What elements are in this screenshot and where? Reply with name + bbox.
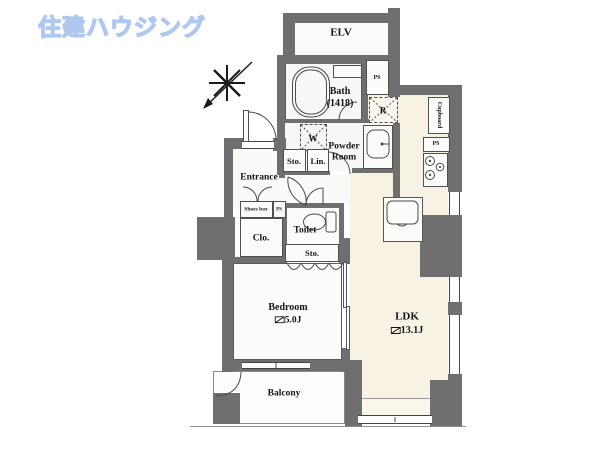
ldk-label: LDK <box>395 312 419 323</box>
ldk-size-label: 13.1J <box>391 326 424 336</box>
wall <box>388 85 462 95</box>
stove-box <box>423 153 448 187</box>
washbasin-vanity <box>363 125 393 169</box>
wall-pillar <box>213 393 240 424</box>
compass-icon <box>203 62 252 109</box>
window <box>358 415 432 424</box>
ground-line <box>190 426 466 427</box>
ps-label: PS <box>432 141 439 147</box>
wall <box>283 13 400 23</box>
window <box>449 277 460 302</box>
window <box>242 362 310 369</box>
wall <box>448 302 462 315</box>
window <box>449 192 460 215</box>
ps-label: PS <box>373 75 380 81</box>
powder-room-label-2: Room <box>332 153 356 163</box>
window <box>449 315 460 374</box>
fridge-label: R <box>380 107 387 116</box>
wall <box>224 148 233 211</box>
balcony-label: Balcony <box>268 389 301 399</box>
toilet-label: Toilet <box>294 226 317 236</box>
powder-room-label-1: Powder <box>328 142 359 152</box>
entrance-door-arc <box>249 112 276 140</box>
sliding-door-panel <box>343 262 347 308</box>
tatami-icon <box>391 327 401 334</box>
wall <box>222 260 233 372</box>
elv-label: ELV <box>330 28 352 39</box>
bath-counter <box>333 65 362 78</box>
entrance-door-sill <box>242 141 274 149</box>
wall <box>285 203 343 208</box>
wall <box>224 205 233 217</box>
tatami-icon <box>275 316 285 323</box>
company-logo: 住建ハウジング <box>38 8 206 42</box>
bath-label: Bath <box>330 87 351 97</box>
storage-label: Sto. <box>287 157 301 166</box>
wall <box>448 95 462 192</box>
wall-pillar <box>197 217 235 260</box>
floor-plan: 住建ハウジング <box>0 0 600 450</box>
corridor <box>279 175 350 205</box>
wall-column <box>420 215 462 277</box>
wall <box>342 238 350 264</box>
shoes-box-label: Shoes box <box>244 207 267 213</box>
entrance-door-leaf <box>243 110 249 142</box>
bedroom-size-label: 5.0J <box>275 316 302 326</box>
closet-label: Clo. <box>253 234 270 244</box>
linen-label: Lin. <box>311 157 326 166</box>
storage-label: Sto. <box>305 249 319 258</box>
sliding-door-panel <box>346 306 350 350</box>
entrance-label: Entrance <box>240 173 277 183</box>
ps-label: PS <box>276 208 282 213</box>
washer-label: W <box>309 135 318 144</box>
kitchen-counter <box>383 197 423 242</box>
cupboard-label: Cupboard <box>436 102 442 128</box>
bath-size-label: (1418) <box>327 99 354 109</box>
bedroom-label: Bedroom <box>268 303 307 313</box>
wall <box>393 123 400 206</box>
wall <box>430 380 462 427</box>
